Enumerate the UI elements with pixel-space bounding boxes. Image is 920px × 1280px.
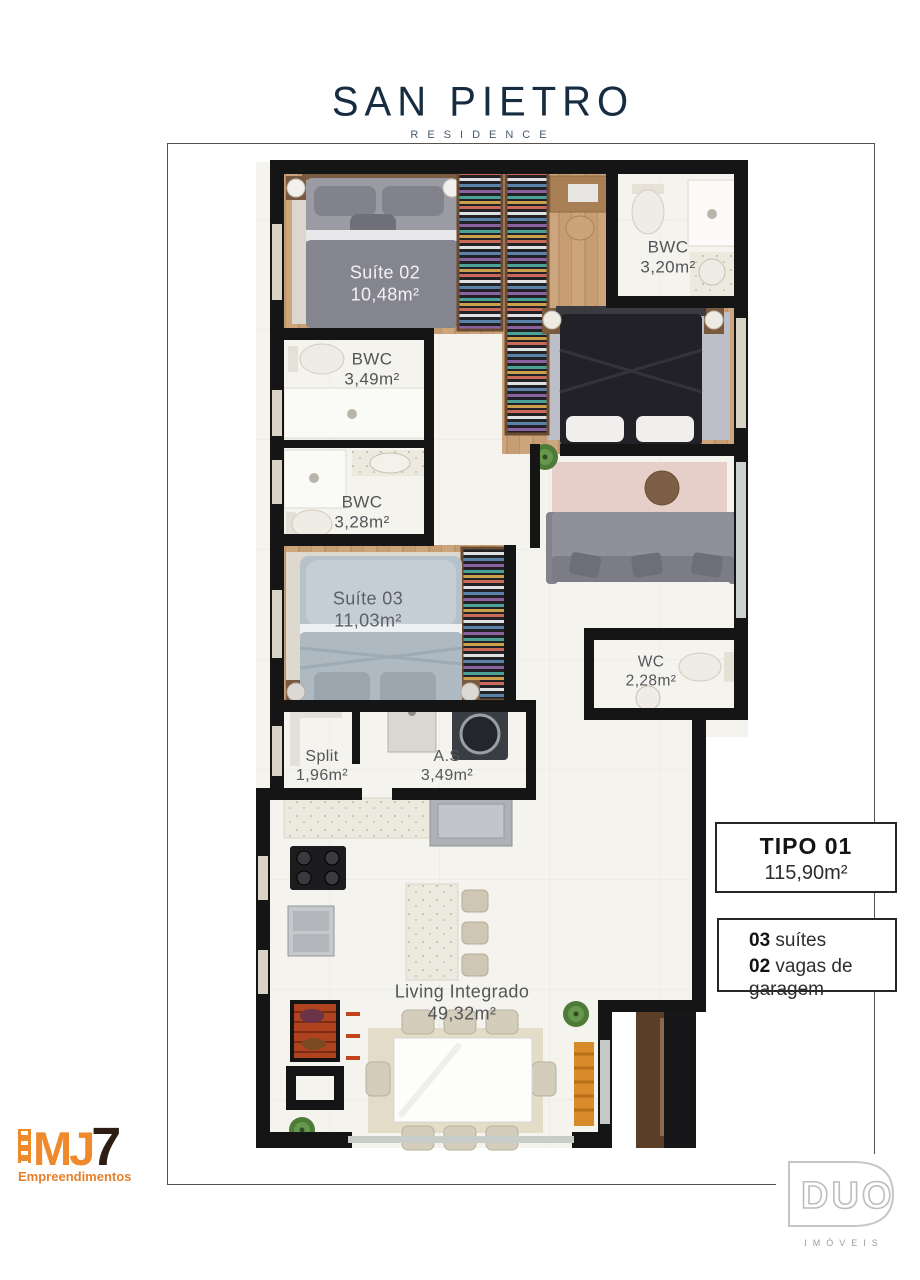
- spec-suites: 03 suítes: [749, 930, 887, 952]
- mj7-logo-mj: MJ: [33, 1129, 92, 1169]
- tipo-box: TIPO 01 115,90m²: [715, 822, 897, 893]
- specs-box: 03 suítes 02 vagas de garagem: [717, 918, 897, 992]
- room-label-bwc-top: BWC3,20m²: [640, 238, 695, 279]
- tipo-title: TIPO 01: [717, 833, 895, 860]
- mj7-logo-seven: 7: [91, 1126, 121, 1169]
- room-label-wc: WC2,28m²: [626, 653, 677, 690]
- tv-panel: [636, 1006, 696, 1148]
- floor-plan: [0, 0, 920, 1280]
- plant-icon: [563, 1001, 589, 1027]
- mj7-logo-sub: Empreendimentos: [18, 1169, 131, 1184]
- spec-garage: 02 vagas de garagem: [749, 956, 887, 1001]
- duo-logo: DUO IMÓVEIS: [776, 1154, 906, 1250]
- master-bedroom-furniture: [542, 306, 724, 446]
- doormat: [574, 1042, 594, 1126]
- room-label-bwc-mid: BWC3,49m²: [344, 350, 399, 391]
- duo-logo-sub: IMÓVEIS: [780, 1238, 902, 1248]
- duo-logo-mark: DUO: [785, 1158, 897, 1230]
- room-label-living: Living Integrado49,32m²: [395, 981, 530, 1024]
- room-label-bwc-low: BWC3,28m²: [334, 493, 389, 534]
- page: SAN PIETRO RESIDENCE: [0, 0, 920, 1280]
- room-label-suite03: Suíte 0311,03m²: [333, 588, 403, 631]
- filmstrip-icon: [18, 1129, 31, 1163]
- tipo-area: 115,90m²: [717, 862, 895, 885]
- room-label-as: A.S3,49m²: [421, 747, 473, 785]
- room-label-suite02: Suíte 0210,48m²: [350, 262, 420, 305]
- svg-text:DUO: DUO: [801, 1175, 894, 1217]
- room-label-split: Split1,96m²: [296, 747, 348, 785]
- mj7-logo: MJ 7 Empreendimentos: [18, 1126, 131, 1184]
